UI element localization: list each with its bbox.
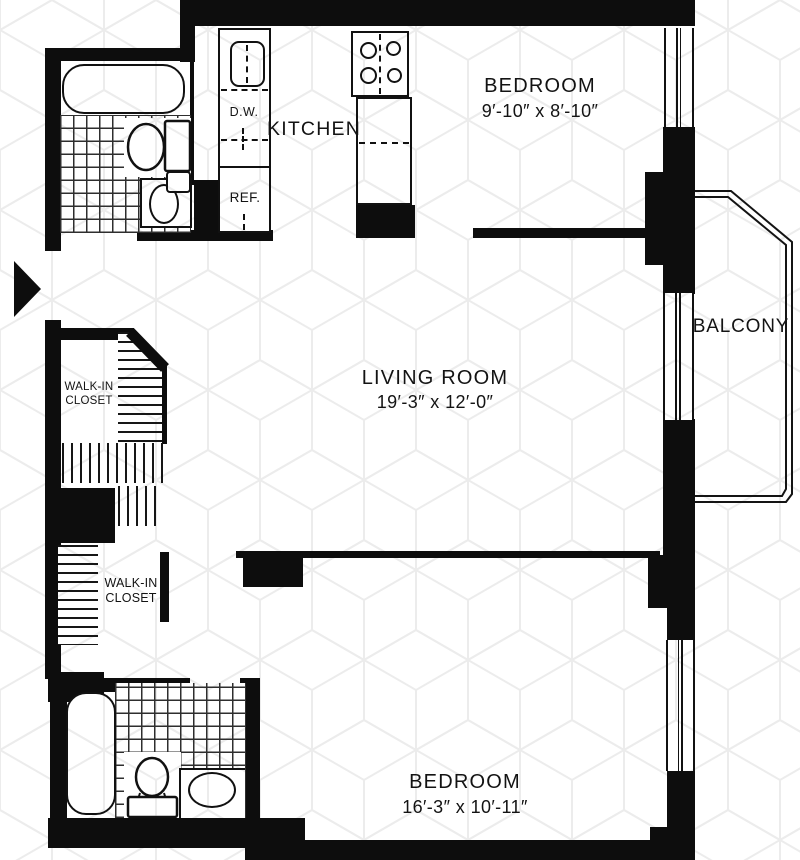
balcony-sliding-door	[663, 293, 694, 420]
window-glass-line	[676, 28, 678, 127]
dw-bottom-dash	[221, 139, 268, 141]
window-frame-line	[692, 293, 694, 420]
wall-right-c	[663, 419, 695, 556]
burner-icon	[360, 42, 377, 59]
closet-top-shelving	[118, 332, 162, 443]
dw-dash	[242, 128, 244, 150]
ref-dash	[243, 214, 245, 230]
kitchen-counter	[356, 97, 412, 205]
refrigerator-label: REF.	[219, 190, 271, 205]
wall-bedroom1-bottom	[473, 228, 649, 238]
window-glass-line	[678, 640, 680, 771]
toilet-top-backing	[124, 118, 191, 177]
dishwasher-label: D.W.	[218, 105, 270, 119]
kitchen-label: KITCHEN	[264, 118, 364, 141]
floor-plan: KITCHEN BEDROOM 9′-10″ x 8′-10″ LIVING R…	[0, 0, 800, 860]
sink-top-basin	[149, 184, 179, 224]
closet-top-label-line2: CLOSET	[59, 395, 119, 408]
cabinet-center-dash	[246, 45, 248, 83]
wall-closet-divider	[45, 488, 115, 543]
wall-balcony-jamb	[645, 172, 695, 265]
wall-bottom-band	[245, 840, 695, 860]
window-frame-line	[693, 640, 695, 771]
wall-right-bump	[648, 555, 695, 608]
window-frame-line	[663, 293, 665, 420]
closet-top-label-line1: WALK-IN	[59, 381, 119, 394]
window-glass-line	[679, 293, 681, 420]
bathtub-top	[62, 64, 185, 114]
closet-bottom-label-line1: WALK-IN	[96, 576, 166, 590]
wall-right-b	[663, 264, 695, 294]
bathtub-bottom	[66, 692, 116, 815]
sink-bottom-basin	[188, 772, 236, 808]
wall-bath1-left	[45, 48, 61, 251]
entrance-arrow-icon	[14, 261, 41, 317]
bedroom-bottom-dimensions: 16′-3″ x 10′-11″	[365, 797, 565, 818]
balcony-outline	[695, 191, 792, 502]
living-room-label: LIVING ROOM	[335, 367, 535, 390]
dw-top-dash	[221, 89, 268, 91]
wall-bath1-top	[45, 48, 191, 61]
wall-living-bedroom-line	[236, 551, 660, 558]
wall-bath1-kitchen	[194, 180, 218, 232]
bedroom-top-dimensions: 9′-10″ x 8′-10″	[440, 101, 640, 122]
bedroom-top-window	[664, 28, 694, 127]
window-glass-line	[681, 640, 683, 771]
counter-dash	[359, 142, 409, 144]
bedroom-bottom-window	[666, 640, 695, 771]
closet-top-rod-hatch2	[118, 486, 163, 526]
wall-stove-block	[356, 205, 415, 238]
wall-bottom-left-block	[48, 818, 305, 848]
burner-icon	[387, 68, 402, 83]
window-frame-line	[664, 28, 666, 127]
toilet-bottom-backing	[124, 752, 181, 818]
wall-right-d	[667, 607, 695, 642]
bedroom-top-label: BEDROOM	[440, 75, 640, 98]
balcony-label: BALCONY	[690, 316, 792, 338]
living-room-dimensions: 19′-3″ x 12′-0″	[335, 392, 535, 413]
window-frame-line	[692, 28, 694, 127]
stove-center-dash	[379, 34, 381, 94]
burner-icon	[360, 67, 377, 84]
burner-icon	[386, 41, 401, 56]
closet-top-rod-hatch	[62, 443, 163, 483]
wall-living-bedroom-block	[243, 558, 303, 587]
closet-bottom-shelving	[58, 545, 98, 645]
wall-bath2-left	[50, 694, 67, 820]
window-glass-line	[675, 293, 677, 420]
window-frame-line	[666, 640, 668, 771]
wall-right-a	[663, 127, 695, 173]
closet-bottom-label-line2: CLOSET	[96, 591, 166, 605]
window-glass-line	[680, 28, 682, 127]
wall-top-band	[180, 0, 695, 26]
bedroom-bottom-label: BEDROOM	[365, 771, 565, 794]
